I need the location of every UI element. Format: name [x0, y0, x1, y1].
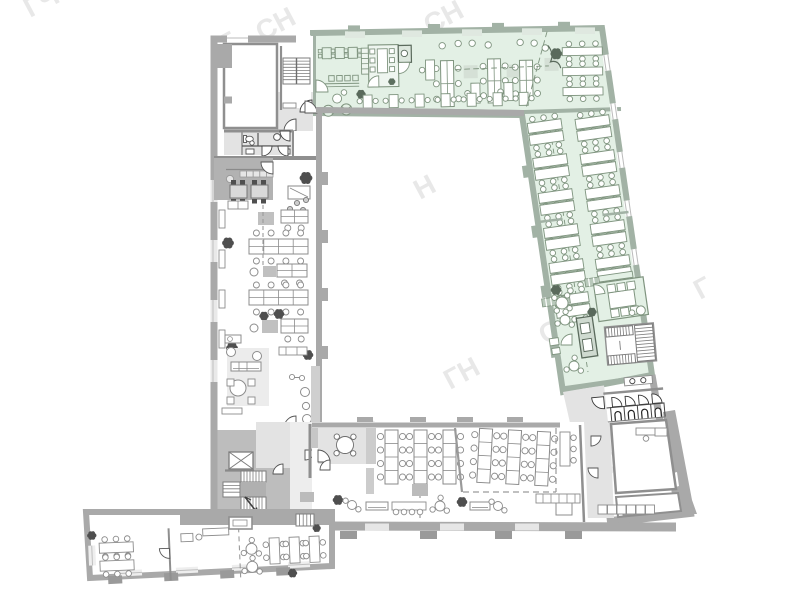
- svg-text:Г: Г: [688, 270, 717, 305]
- svg-text:ГЧ: ГЧ: [18, 0, 64, 23]
- svg-text:Н: Н: [408, 168, 440, 205]
- svg-text:ГН: ГН: [438, 351, 484, 395]
